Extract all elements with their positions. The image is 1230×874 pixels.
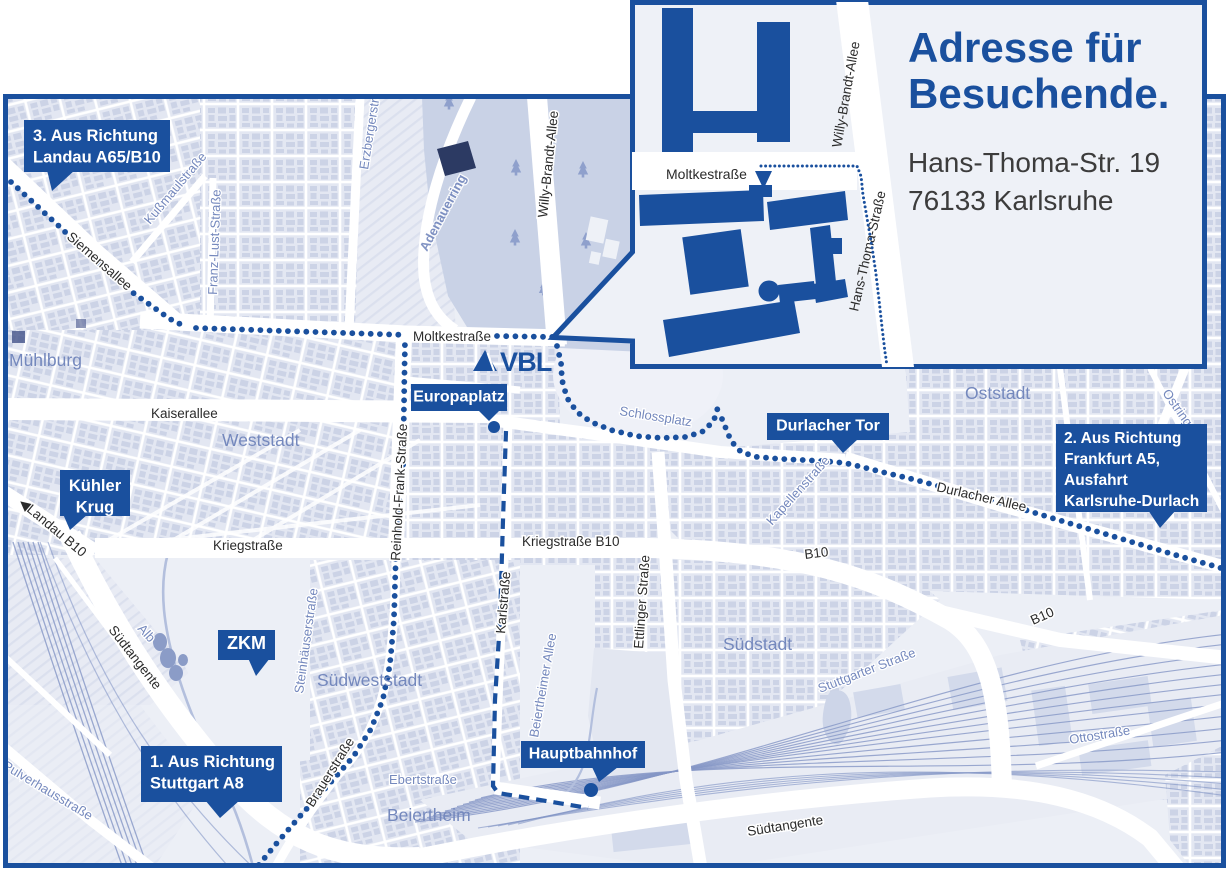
svg-text:Ebertstraße: Ebertstraße: [389, 772, 457, 787]
svg-text:1. Aus Richtung: 1. Aus Richtung: [150, 753, 275, 771]
svg-text:Hauptbahnhof: Hauptbahnhof: [529, 746, 638, 763]
svg-text:Krug: Krug: [76, 498, 115, 516]
svg-text:Südstadt: Südstadt: [723, 634, 792, 654]
svg-text:Landau A65/B10: Landau A65/B10: [33, 148, 161, 166]
svg-text:Hans-Thoma-Str. 19: Hans-Thoma-Str. 19: [908, 147, 1160, 178]
svg-text:Durlacher Tor: Durlacher Tor: [776, 418, 880, 435]
svg-text:B10: B10: [804, 544, 830, 562]
svg-text:76133 Karlsruhe: 76133 Karlsruhe: [908, 185, 1113, 216]
svg-text:Frankfurt A5,: Frankfurt A5,: [1064, 451, 1160, 468]
svg-text:Mühlburg: Mühlburg: [9, 350, 82, 370]
svg-text:2. Aus Richtung: 2. Aus Richtung: [1064, 430, 1181, 447]
svg-text:Kaiserallee: Kaiserallee: [151, 406, 218, 421]
svg-text:Karlsruhe-Durlach: Karlsruhe-Durlach: [1064, 493, 1199, 510]
svg-text:Kriegstraße B10: Kriegstraße B10: [522, 534, 620, 549]
svg-text:Adresse für: Adresse für: [908, 24, 1141, 71]
svg-text:Besuchende.: Besuchende.: [908, 70, 1169, 117]
svg-text:Ausfahrt: Ausfahrt: [1064, 472, 1128, 489]
svg-text:ZKM: ZKM: [227, 633, 266, 653]
svg-text:Moltkestraße: Moltkestraße: [413, 329, 491, 344]
svg-text:Oststadt: Oststadt: [965, 383, 1030, 403]
svg-text:Südweststadt: Südweststadt: [317, 670, 422, 690]
svg-text:Kriegstraße: Kriegstraße: [213, 538, 283, 553]
svg-text:Kühler: Kühler: [69, 477, 122, 495]
svg-text:Stuttgart A8: Stuttgart A8: [150, 774, 244, 792]
svg-text:Weststadt: Weststadt: [222, 430, 300, 450]
svg-text:Beiertheim: Beiertheim: [387, 805, 471, 825]
svg-text:Moltkestraße: Moltkestraße: [666, 166, 747, 182]
svg-text:3. Aus Richtung: 3. Aus Richtung: [33, 127, 158, 145]
svg-text:Europaplatz: Europaplatz: [413, 389, 505, 406]
svg-text:VBL: VBL: [500, 347, 552, 377]
